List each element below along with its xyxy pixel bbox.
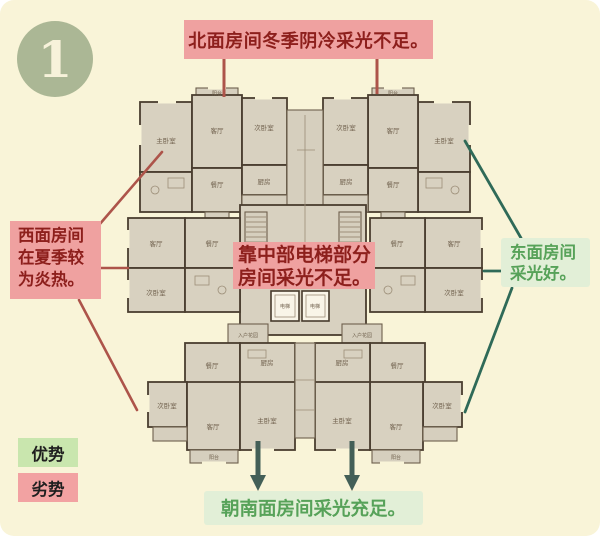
room-label: 入户花园 (238, 332, 258, 339)
legend-disadvantage-label: 劣势 (32, 476, 65, 500)
room-label: 客厅 (448, 239, 462, 248)
callout-north: 北面房间冬季阴冷采光不足。 (184, 20, 433, 59)
callout-center-line2: 房间采光不足。 (238, 267, 375, 290)
room-label: 餐厅 (391, 239, 405, 248)
room-master-bottom-left (240, 382, 295, 450)
room-label: 客厅 (150, 239, 164, 248)
room-label: 次卧室 (157, 401, 177, 410)
room-label: 餐厅 (206, 361, 220, 370)
room-dining-top-right (368, 168, 418, 212)
room-label: 厨房 (340, 177, 353, 186)
step-badge: 1 (17, 21, 93, 97)
room-label: 餐厅 (387, 180, 401, 189)
south-arrowhead-right (344, 475, 360, 491)
room-label: 客厅 (207, 422, 221, 431)
room-label: 餐厅 (211, 180, 225, 189)
room-label: 主卧室 (156, 136, 176, 145)
room-label: 次卧室 (254, 123, 274, 132)
callout-east-line1: 东面房间 (510, 242, 590, 263)
callout-east-line2: 采光好。 (510, 263, 590, 284)
room-label: 餐厅 (391, 361, 405, 370)
room-label: 客厅 (387, 126, 401, 135)
callout-center-line1: 靠中部电梯部分 (238, 244, 375, 267)
room-label: 入户花园 (352, 332, 372, 339)
step-number: 1 (38, 30, 73, 89)
infographic-canvas: 主卧室 客厅 阳台 次卧室 餐厅 厨房 主卧室 客厅 阳台 次卧室 餐厅 厨房 … (0, 0, 600, 536)
room-master-bottom-right (315, 382, 370, 450)
callout-north-text: 北面房间冬季阴冷采光不足。 (188, 27, 429, 53)
room-label: 电梯 (280, 303, 290, 310)
room-label: 次卧室 (336, 123, 356, 132)
room-living-bottom-right (370, 382, 423, 450)
callout-west-line1: 西面房间 (18, 225, 101, 247)
room-label: 客厅 (211, 126, 225, 135)
legend-advantage-label: 优势 (32, 441, 65, 465)
room-label: 阳台 (388, 90, 398, 97)
room-label: 主卧室 (434, 136, 454, 145)
room-bay-bottom-right (423, 427, 457, 441)
room-label: 阳台 (209, 454, 219, 461)
callout-south-text: 朝南面房间采光充足。 (221, 495, 406, 521)
room-label: 主卧室 (257, 416, 277, 425)
connector-west-bottom (79, 300, 137, 410)
room-label: 厨房 (258, 177, 271, 186)
legend-advantage: 优势 (18, 438, 78, 467)
room-living-bottom-left (187, 382, 240, 450)
shaft-bottom-middle (295, 343, 315, 438)
room-label: 电梯 (310, 303, 320, 310)
room-label: 次卧室 (146, 288, 166, 297)
room-label: 次卧室 (444, 288, 464, 297)
room-label: 厨房 (336, 358, 349, 367)
legend-disadvantage: 劣势 (18, 473, 78, 502)
room-label: 主卧室 (332, 416, 352, 425)
callout-west-line3: 为炎热。 (18, 269, 101, 291)
room-bath-mid-right (370, 268, 425, 312)
callout-east: 东面房间 采光好。 (501, 238, 590, 287)
callout-south: 朝南面房间采光充足。 (204, 491, 423, 525)
room-label: 阳台 (212, 90, 222, 97)
callout-center: 靠中部电梯部分 房间采光不足。 (233, 242, 375, 289)
room-label: 客厅 (390, 422, 404, 431)
room-dining-top-left (192, 168, 242, 212)
room-bath-mid-left (185, 268, 240, 312)
room-label: 厨房 (261, 358, 274, 367)
room-bay-bottom-left (153, 427, 187, 441)
room-label: 餐厅 (206, 239, 220, 248)
south-arrowhead-left (250, 475, 266, 491)
room-label: 阳台 (391, 454, 401, 461)
callout-west-line2: 在夏季较 (18, 247, 101, 269)
callout-west: 西面房间 在夏季较 为炎热。 (10, 221, 101, 299)
room-label: 次卧室 (432, 401, 452, 410)
